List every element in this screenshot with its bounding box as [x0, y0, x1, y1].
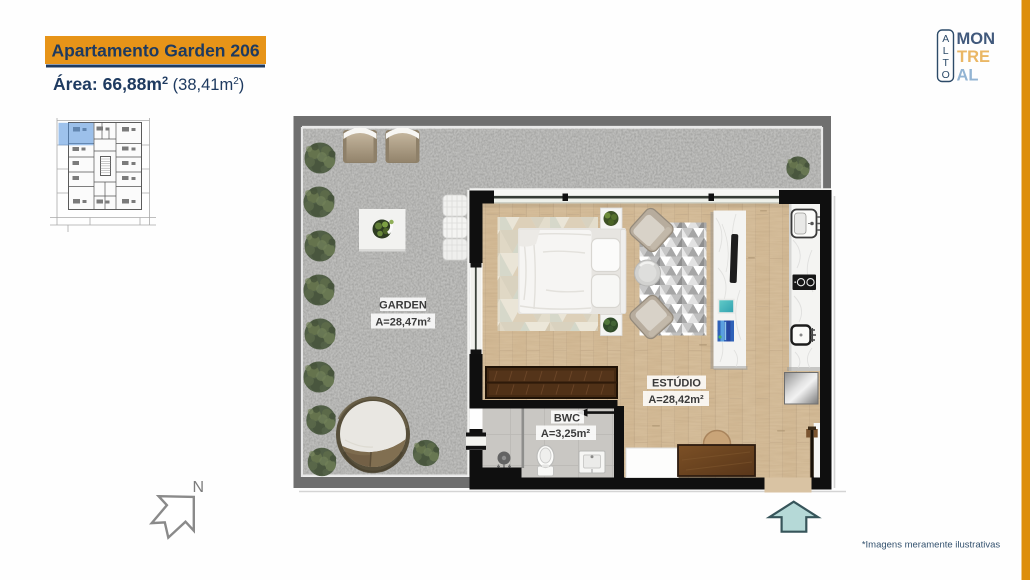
- svg-text:AL: AL: [957, 67, 979, 85]
- svg-text:GARDEN: GARDEN: [379, 300, 427, 312]
- svg-text:T: T: [942, 57, 949, 69]
- svg-text:A=28,47m²: A=28,47m²: [375, 317, 431, 329]
- svg-text:Área: 66,88m2 (38,41m2): Área: 66,88m2 (38,41m2): [53, 73, 244, 94]
- svg-text:ESTÚDIO: ESTÚDIO: [652, 377, 701, 390]
- svg-text:*Imagens meramente ilustrativa: *Imagens meramente ilustrativas: [862, 540, 1001, 551]
- svg-text:L: L: [943, 45, 949, 57]
- svg-text:A: A: [942, 33, 949, 45]
- svg-text:Apartamento Garden 206: Apartamento Garden 206: [51, 41, 259, 61]
- svg-text:O: O: [942, 69, 950, 81]
- svg-text:N: N: [193, 479, 205, 496]
- svg-text:MON: MON: [957, 30, 996, 48]
- svg-text:A=28,42m²: A=28,42m²: [648, 394, 704, 406]
- svg-text:BWC: BWC: [554, 413, 580, 425]
- svg-text:TRE: TRE: [957, 48, 990, 66]
- svg-text:A=3,25m²: A=3,25m²: [541, 428, 591, 440]
